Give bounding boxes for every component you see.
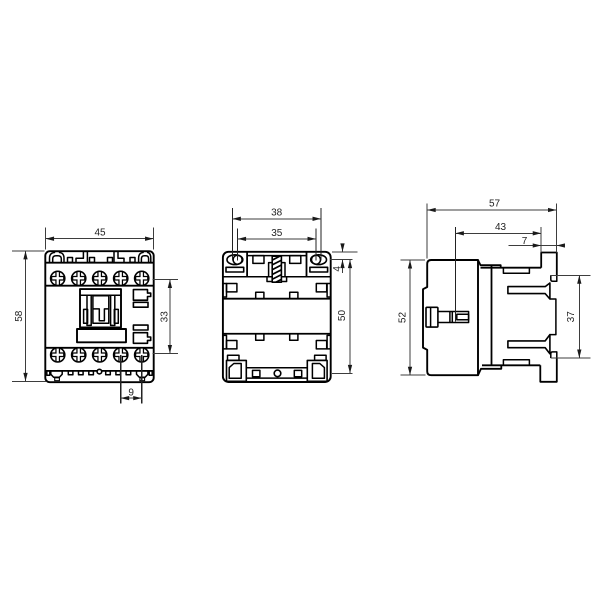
svg-text:37: 37 [566,311,577,323]
svg-text:7: 7 [522,236,528,247]
svg-text:58: 58 [14,310,25,322]
svg-text:50: 50 [337,310,348,322]
svg-text:52: 52 [397,312,408,324]
svg-text:35: 35 [271,228,283,239]
svg-text:9: 9 [128,388,134,399]
svg-text:57: 57 [489,199,501,210]
svg-text:4: 4 [332,266,343,272]
svg-text:33: 33 [159,311,170,323]
svg-text:38: 38 [271,208,283,219]
svg-text:45: 45 [94,228,106,239]
svg-text:43: 43 [495,222,507,233]
